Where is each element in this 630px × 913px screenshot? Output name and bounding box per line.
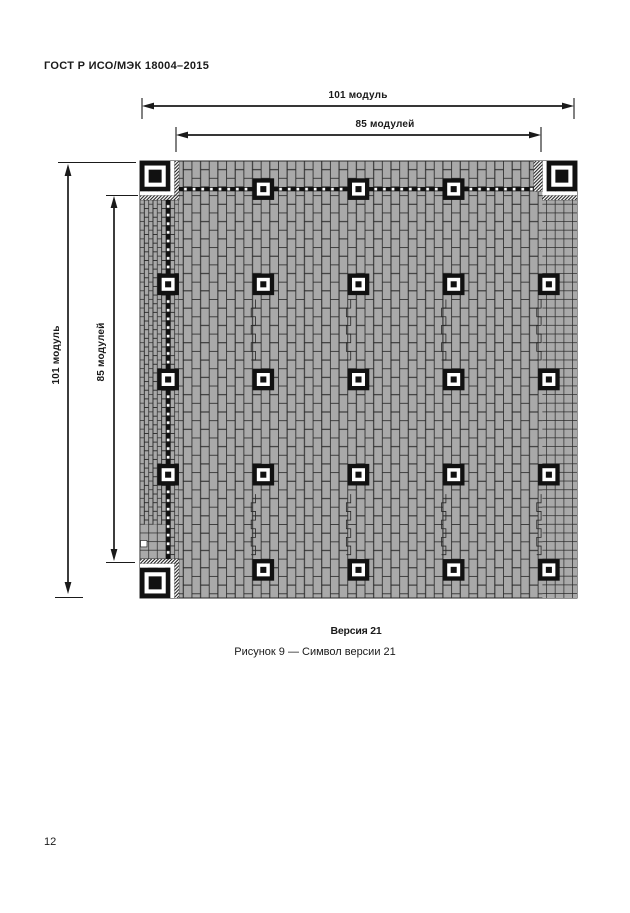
page-number: 12	[44, 837, 56, 848]
dimension-label-width-total: 101 модуль	[328, 91, 387, 101]
dimension-label-height-total: 101 модуль	[52, 325, 62, 384]
dimension-label-height-inner: 85 модулей	[97, 323, 107, 382]
figure-version-label: Версия 21	[330, 626, 381, 637]
standard-header: ГОСТ Р ИСО/МЭК 18004–2015	[44, 61, 209, 72]
figure-caption: Рисунок 9 — Символ версии 21	[234, 647, 396, 658]
qr-version21-figure	[0, 0, 630, 913]
dimension-label-width-inner: 85 модулей	[356, 120, 415, 130]
document-page: ГОСТ Р ИСО/МЭК 18004–2015 101 модуль 85 …	[0, 0, 630, 913]
